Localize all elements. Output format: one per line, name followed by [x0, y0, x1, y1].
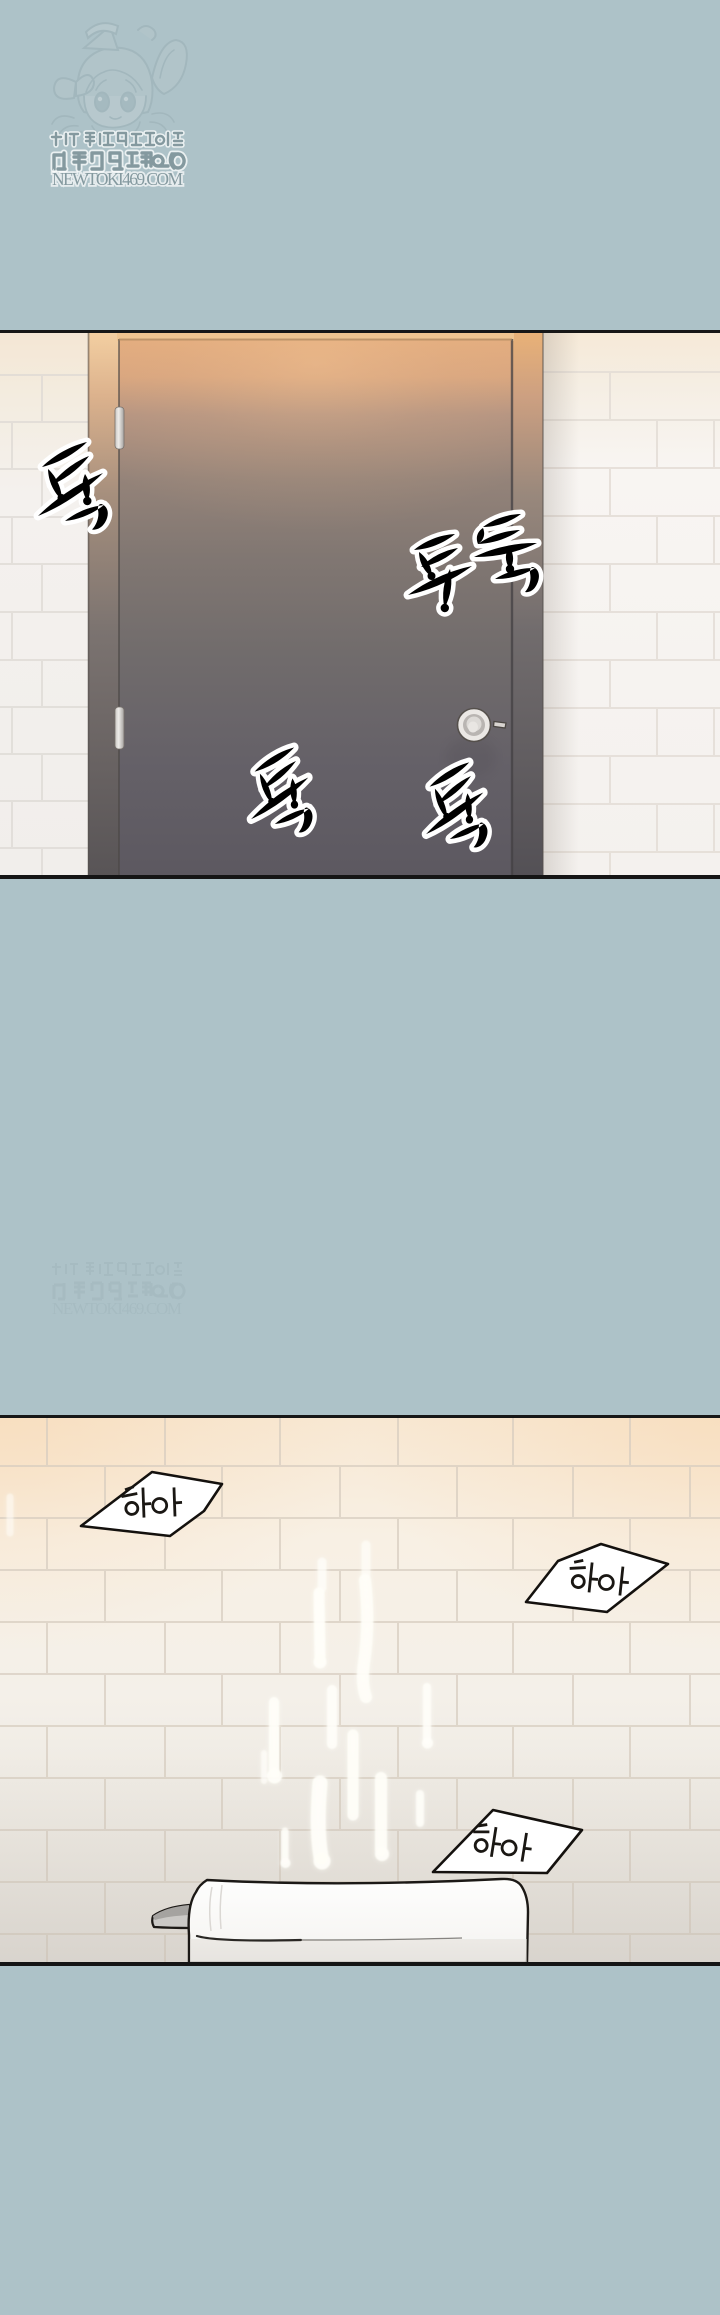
svg-text:NEWTOKI469.COM: NEWTOKI469.COM: [52, 169, 183, 189]
svg-text:NEWTOKI469.COM: NEWTOKI469.COM: [52, 1299, 182, 1318]
